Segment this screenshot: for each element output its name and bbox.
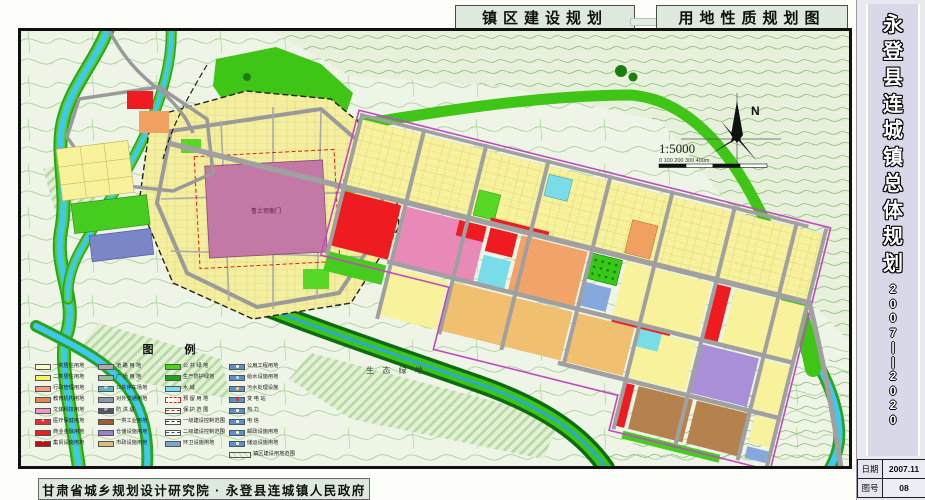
title-block-sidebar: 永登县连城镇总体规划 2007||2020 日期2007.11图号08 bbox=[856, 0, 925, 500]
legend-label: 一类居住用地 bbox=[53, 364, 84, 369]
legend-symbol: + bbox=[42, 419, 45, 424]
legend-label: 文体科技用地 bbox=[53, 408, 84, 413]
legend-dot bbox=[236, 398, 239, 401]
legend-label: 仓储设施用地 bbox=[116, 430, 147, 435]
legend-swatch bbox=[229, 430, 245, 436]
scale-ticks: 0 100 200 300 400m bbox=[659, 158, 710, 164]
legend-label: 道 路 用 地 bbox=[116, 364, 141, 369]
info-value: 08 bbox=[883, 479, 925, 498]
legend-label: 预 留 用 地 bbox=[183, 397, 208, 402]
legend-label: 二类居住用地 bbox=[53, 375, 84, 380]
legend-column: 道 路 用 地广 场 用 地P公共停车场地对外交通用地P防 洪 堤一类工业用地仓… bbox=[98, 361, 165, 460]
legend-item: 环卫设施用地 bbox=[165, 438, 229, 449]
legend-item: 一级建设控制范围 bbox=[165, 416, 229, 427]
legend-swatch bbox=[229, 408, 245, 414]
legend-swatch bbox=[35, 430, 51, 436]
legend-item: P公共停车场地 bbox=[98, 383, 165, 394]
legend-column: 一类居住用地二类居住用地行政管理用地教育机构用地文体科技用地+医疗保健用地商业金… bbox=[35, 361, 98, 460]
legend-swatch bbox=[229, 397, 245, 403]
legend-dot bbox=[236, 387, 239, 390]
legend-item: 生产防护绿地 bbox=[165, 372, 229, 383]
plan-title-char: 总 bbox=[883, 171, 903, 198]
legend-label: 镇区建设用地范围 bbox=[253, 452, 295, 457]
legend-swatch bbox=[229, 364, 245, 370]
legend-swatch: P bbox=[98, 386, 114, 392]
legend-label: 环卫设施用地 bbox=[183, 441, 214, 446]
legend-item: 市政设施用地 bbox=[98, 438, 165, 449]
legend-item: 一类居住用地 bbox=[35, 361, 98, 372]
legend-item: 镇区建设用地范围 bbox=[229, 449, 303, 460]
plan-title-char: 城 bbox=[883, 118, 903, 145]
legend-swatch bbox=[165, 375, 181, 381]
legend-line bbox=[166, 432, 180, 433]
legend-item: 预 留 用 地 bbox=[165, 394, 229, 405]
legend-item: P防 洪 堤 bbox=[98, 405, 165, 416]
legend-label: 水 域 bbox=[183, 386, 195, 391]
legend-item: 水 域 bbox=[165, 383, 229, 394]
legend-label: 行政管理用地 bbox=[53, 386, 84, 391]
plan-title-char: 县 bbox=[883, 65, 903, 92]
legend-label: 电 信 bbox=[247, 419, 259, 424]
legend-swatch bbox=[165, 364, 181, 370]
legend-swatch bbox=[98, 419, 114, 425]
legend-label: 二级建设控制范围 bbox=[183, 430, 225, 435]
legend-label: 一级建设控制范围 bbox=[183, 419, 225, 424]
legend-label: 商业金融用地 bbox=[53, 430, 84, 435]
legend-swatch bbox=[35, 386, 51, 392]
legend-swatch bbox=[165, 419, 181, 425]
plan-title-char: 划 bbox=[883, 251, 903, 278]
legend-symbol: * bbox=[42, 441, 44, 446]
plan-year-char: 0 bbox=[890, 311, 897, 326]
legend-symbol: P bbox=[104, 386, 107, 391]
legend-column: 公用工程用地给水设施用地污水处理设施变 电 站热 力电 信邮政设施用地储运设施用… bbox=[229, 361, 303, 460]
legend-column: 公 共 绿 地生产防护绿地水 域预 留 用 地保 护 范 围一级建设控制范围二级… bbox=[165, 361, 229, 460]
legend-item: 给水设施用地 bbox=[229, 372, 303, 383]
info-label: 图号 bbox=[858, 479, 883, 498]
plan-year-char: | bbox=[891, 340, 894, 355]
legend-item: +医疗保健用地 bbox=[35, 416, 98, 427]
plan-year-char: 2 bbox=[890, 369, 897, 384]
plan-year-char: | bbox=[891, 355, 894, 370]
legend-item: 道 路 用 地 bbox=[98, 361, 165, 372]
legend-item: 二类居住用地 bbox=[35, 372, 98, 383]
legend-item: 保 护 范 围 bbox=[165, 405, 229, 416]
legend-symbol: P bbox=[104, 408, 107, 413]
eco-green-label: 生 态 绿 地 bbox=[366, 365, 426, 375]
plan-year-char: 7 bbox=[890, 326, 897, 341]
info-label: 日期 bbox=[858, 460, 883, 479]
legend-label: 教育机构用地 bbox=[53, 397, 84, 402]
legend-swatch bbox=[165, 397, 181, 403]
legend-dot bbox=[236, 365, 239, 368]
plan-year-char: 0 bbox=[890, 413, 897, 428]
north-label: N bbox=[751, 104, 760, 118]
legend-swatch bbox=[165, 408, 181, 414]
legend-swatch bbox=[35, 364, 51, 370]
sheet-info-table: 日期2007.11图号08 bbox=[857, 459, 925, 498]
legend: 图 例 一类居住用地二类居住用地行政管理用地教育机构用地文体科技用地+医疗保健用… bbox=[35, 341, 303, 460]
title-block-panel: 永登县连城镇总体规划 2007||2020 bbox=[866, 4, 920, 456]
legend-item: 文体科技用地 bbox=[35, 405, 98, 416]
legend-swatch bbox=[229, 375, 245, 381]
plan-year-char: 2 bbox=[890, 282, 897, 297]
plan-title-char: 镇 bbox=[883, 145, 903, 172]
legend-label: 生产防护绿地 bbox=[183, 375, 214, 380]
legend-label: 市政设施用地 bbox=[116, 441, 147, 446]
plan-title-char: 永 bbox=[883, 12, 903, 39]
legend-swatch bbox=[98, 430, 114, 436]
info-value: 2007.11 bbox=[883, 460, 925, 479]
legend-swatch bbox=[35, 408, 51, 414]
legend-label: 储运设施用地 bbox=[247, 441, 278, 446]
info-row: 图号08 bbox=[858, 479, 925, 498]
legend-columns: 一类居住用地二类居住用地行政管理用地教育机构用地文体科技用地+医疗保健用地商业金… bbox=[35, 361, 303, 460]
legend-swatch: * bbox=[35, 441, 51, 447]
legend-swatch bbox=[229, 419, 245, 425]
legend-dot bbox=[236, 442, 239, 445]
sheet-title-right: 用地性质规划图 bbox=[656, 5, 848, 29]
legend-dot bbox=[236, 376, 239, 379]
scale-ratio: 1:5000 bbox=[659, 141, 695, 156]
plan-title-char: 体 bbox=[883, 198, 903, 225]
legend-item: 邮政设施用地 bbox=[229, 427, 303, 438]
legend-item: 广 场 用 地 bbox=[98, 372, 165, 383]
legend-swatch bbox=[229, 452, 251, 458]
legend-swatch bbox=[165, 430, 181, 436]
legend-item: 二级建设控制范围 bbox=[165, 427, 229, 438]
legend-dot bbox=[236, 420, 239, 423]
legend-swatch bbox=[98, 375, 114, 381]
legend-line bbox=[166, 421, 180, 422]
map-frame: 鲁土司衙门 bbox=[18, 28, 852, 469]
plan-title-vertical: 永登县连城镇总体规划 bbox=[868, 12, 918, 277]
legend-swatch bbox=[98, 441, 114, 447]
legend-item: 一类工业用地 bbox=[98, 416, 165, 427]
planning-sheet: 镇区建设规划 用地性质规划图 bbox=[0, 0, 925, 500]
legend-swatch bbox=[35, 375, 51, 381]
legend-swatch bbox=[165, 386, 181, 392]
legend-label: 污水处理设施 bbox=[247, 386, 278, 391]
legend-item: 教育机构用地 bbox=[35, 394, 98, 405]
plan-title-char: 登 bbox=[883, 39, 903, 66]
legend-label: 邮政设施用地 bbox=[247, 430, 278, 435]
plan-year-char: 0 bbox=[890, 297, 897, 312]
legend-swatch bbox=[98, 397, 114, 403]
legend-swatch bbox=[35, 397, 51, 403]
legend-label: 公用工程用地 bbox=[247, 364, 278, 369]
legend-label: 一类工业用地 bbox=[116, 419, 147, 424]
legend-item: 公用工程用地 bbox=[229, 361, 303, 372]
sheet-title-left: 镇区建设规划 bbox=[455, 5, 635, 29]
legend-swatch bbox=[98, 364, 114, 370]
legend-swatch bbox=[229, 386, 245, 392]
heritage-label: 鲁土司衙门 bbox=[251, 207, 281, 215]
legend-line bbox=[166, 410, 180, 411]
legend-item: 变 电 站 bbox=[229, 394, 303, 405]
credit-bar: 甘肃省城乡规划设计研究院 · 永登县连城镇人民政府 bbox=[38, 478, 370, 500]
legend-swatch bbox=[229, 441, 245, 447]
legend-item: 电 信 bbox=[229, 416, 303, 427]
legend-item: 污水处理设施 bbox=[229, 383, 303, 394]
legend-label: 医疗保健用地 bbox=[53, 419, 84, 424]
legend-label: 给水设施用地 bbox=[247, 375, 278, 380]
legend-item: 公 共 绿 地 bbox=[165, 361, 229, 372]
legend-label: 广 场 用 地 bbox=[116, 375, 141, 380]
legend-dot bbox=[236, 409, 239, 412]
info-row: 日期2007.11 bbox=[858, 460, 925, 479]
legend-item: 储运设施用地 bbox=[229, 438, 303, 449]
legend-item: 仓储设施用地 bbox=[98, 427, 165, 438]
legend-label: 公 共 绿 地 bbox=[183, 364, 208, 369]
legend-label: 集贸设施用地 bbox=[53, 441, 84, 446]
legend-label: 防 洪 堤 bbox=[116, 408, 135, 413]
plan-year-char: 0 bbox=[890, 384, 897, 399]
legend-item: 对外交通用地 bbox=[98, 394, 165, 405]
legend-item: 商业金融用地 bbox=[35, 427, 98, 438]
legend-item: 行政管理用地 bbox=[35, 383, 98, 394]
legend-dot bbox=[236, 431, 239, 434]
legend-label: 变 电 站 bbox=[247, 397, 266, 402]
legend-label: 对外交通用地 bbox=[116, 397, 147, 402]
legend-swatch bbox=[165, 441, 181, 447]
legend-item: *集贸设施用地 bbox=[35, 438, 98, 449]
legend-swatch: P bbox=[98, 408, 114, 414]
legend-label: 保 护 范 围 bbox=[183, 408, 208, 413]
legend-swatch: + bbox=[35, 419, 51, 425]
legend-header: 图 例 bbox=[35, 341, 303, 357]
plan-title-char: 规 bbox=[883, 224, 903, 251]
plan-years-vertical: 2007||2020 bbox=[868, 282, 918, 427]
legend-label: 热 力 bbox=[247, 408, 259, 413]
legend-item: 热 力 bbox=[229, 405, 303, 416]
plan-year-char: 2 bbox=[890, 398, 897, 413]
legend-label: 公共停车场地 bbox=[116, 386, 147, 391]
plan-title-char: 连 bbox=[883, 92, 903, 119]
